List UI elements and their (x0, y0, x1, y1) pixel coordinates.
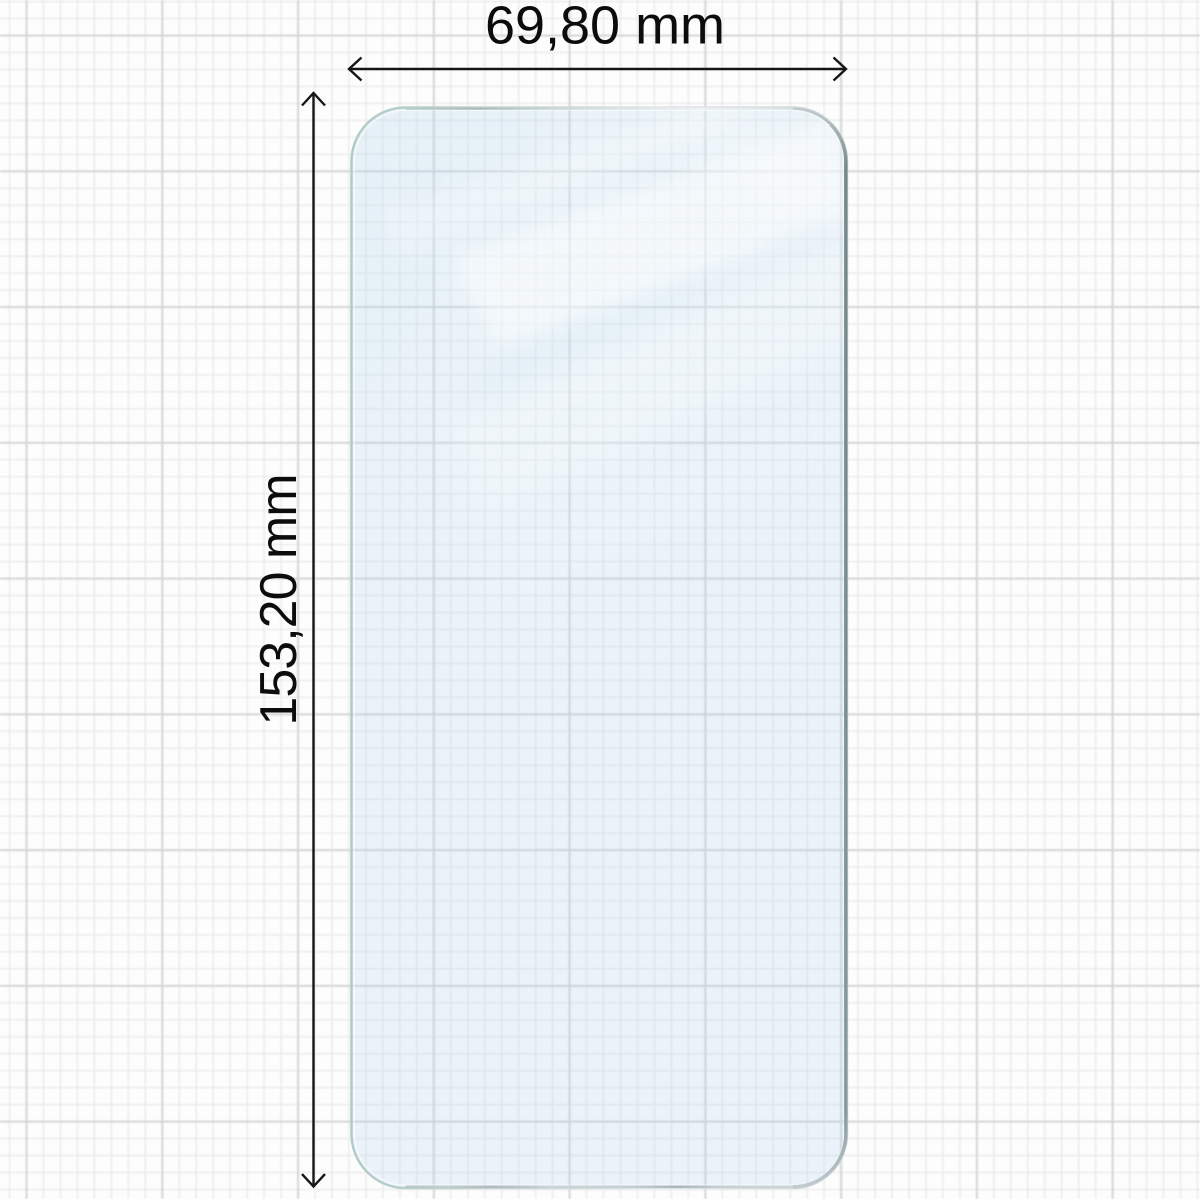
svg-text:69,80 mm: 69,80 mm (485, 0, 725, 56)
svg-text:153,20 mm: 153,20 mm (250, 474, 308, 725)
